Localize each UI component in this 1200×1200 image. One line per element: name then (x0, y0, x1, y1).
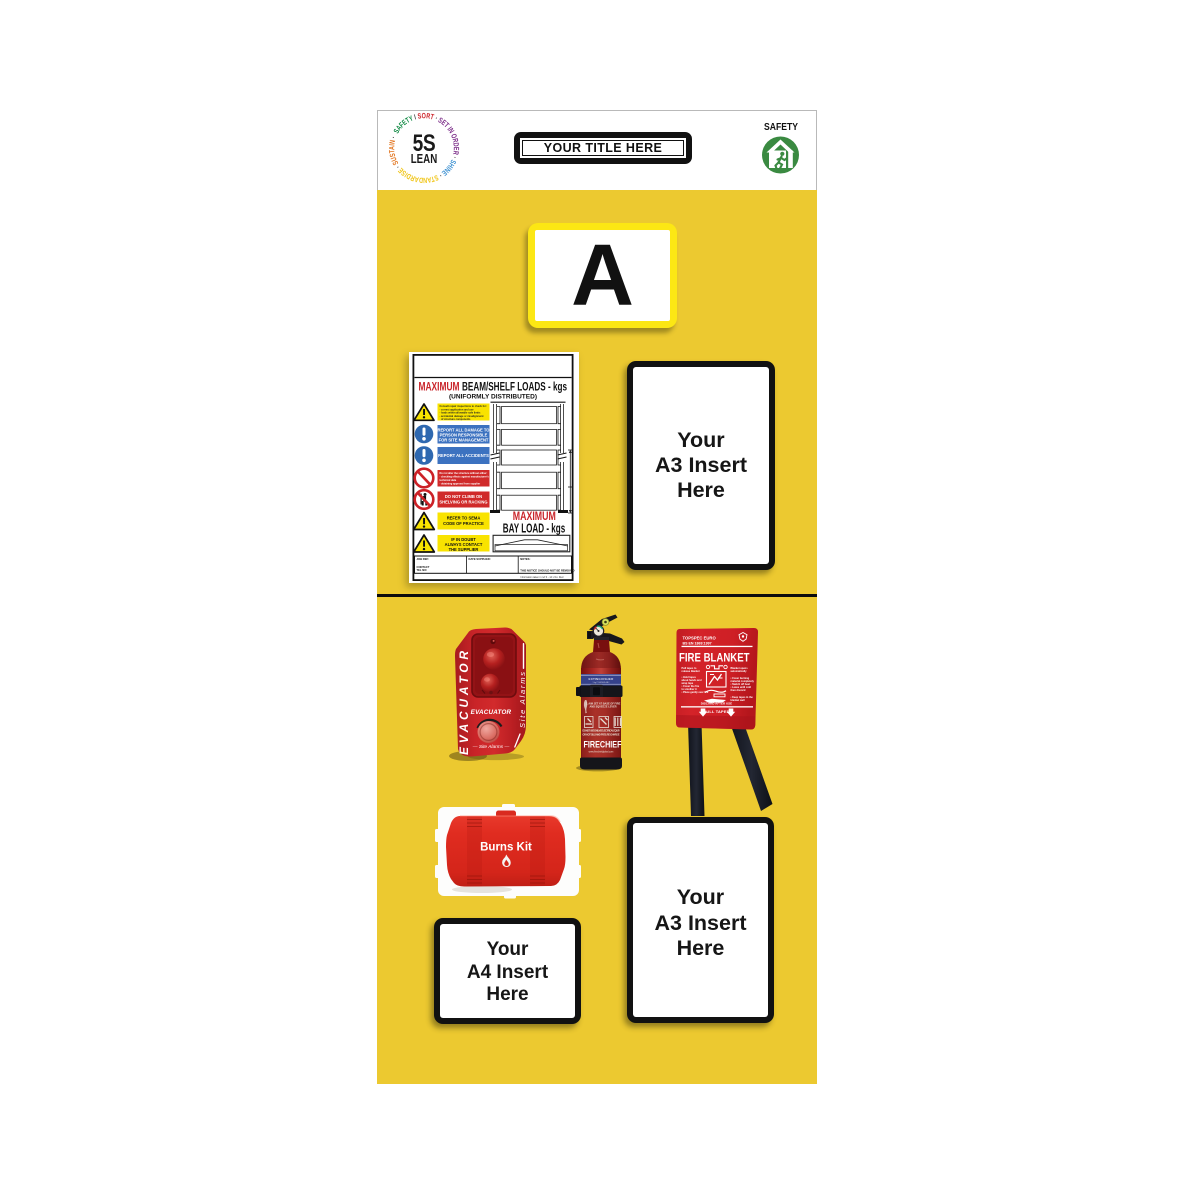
svg-text:REPORT ALL ACCIDENTS: REPORT ALL ACCIDENTS (438, 453, 489, 458)
svg-text:CODE OF PRACTICE: CODE OF PRACTICE (443, 521, 484, 526)
svg-text:AND SQUEEZE LEVER: AND SQUEEZE LEVER (589, 706, 616, 709)
svg-text:BAY LOAD - kgs: BAY LOAD - kgs (502, 522, 564, 536)
svg-text:of structure components: of structure components (441, 418, 471, 421)
svg-text:DISCARD AFTER USE: DISCARD AFTER USE (701, 702, 732, 706)
svg-text:- obtaining approval from supp: - obtaining approval from supplier (439, 482, 480, 485)
svg-text:TEL NO:: TEL NO: (416, 568, 427, 572)
svg-text:FIRECHIEF: FIRECHIEF (584, 740, 622, 751)
svg-text:EVACUATOR: EVACUATOR (471, 709, 512, 716)
svg-text:TOPSPEC EURO: TOPSPEC EURO (683, 636, 717, 641)
svg-text:DO NOT CLIMB ON: DO NOT CLIMB ON (444, 494, 481, 499)
svg-text:1 kg POWDER ABC: 1 kg POWDER ABC (593, 681, 611, 684)
svg-text:automatically: automatically (731, 670, 748, 673)
svg-text:then discard: then discard (731, 689, 746, 692)
svg-text:NOTES:: NOTES: (520, 557, 530, 561)
svg-text:Site Alarms: Site Alarms (518, 672, 527, 728)
svg-text:REFER TO SEMA: REFER TO SEMA (446, 516, 480, 521)
svg-text:PULL TAPES: PULL TAPES (704, 709, 730, 714)
svg-text:BEAM/SHELF LOADS - kgs: BEAM/SHELF LOADS - kgs (462, 382, 567, 394)
svg-text:JOB REF:: JOB REF: (416, 557, 429, 561)
svg-text:release blanket: release blanket (682, 670, 700, 673)
svg-text:EXTINGUISHER: EXTINGUISHER (589, 677, 615, 681)
svg-text:• Place gently over fire: • Place gently over fire (682, 691, 709, 694)
svg-text:LEAN: LEAN (411, 153, 438, 166)
svg-text:Burns Kit: Burns Kit (480, 842, 532, 854)
svg-text:DATE SUPPLIED:: DATE SUPPLIED: (468, 557, 490, 561)
svg-text:FIRE BLANKET: FIRE BLANKET (679, 653, 750, 665)
svg-text:THE SUPPLIER: THE SUPPLIER (448, 547, 478, 552)
svg-text:FOR SITE MANAGEMENT: FOR SITE MANAGEMENT (438, 437, 488, 442)
svg-text:SHELVING OR RACKING: SHELVING OR RACKING (439, 499, 487, 504)
svg-text:BS EN 1869:1997: BS EN 1869:1997 (683, 642, 712, 646)
svg-text:blanket well: blanket well (731, 699, 745, 702)
svg-text:MAXIMUM: MAXIMUM (418, 382, 459, 394)
svg-text:EVACUATOR: EVACUATOR (457, 651, 471, 755)
svg-text:SAFETY: SAFETY (764, 121, 798, 133)
svg-text:www.firechiefglobal.com: www.firechiefglobal.com (589, 750, 614, 753)
svg-text:— Site Alarms —: — Site Alarms — (472, 744, 510, 750)
svg-text:OR HOT OILS AND FATS. RE-CHARG: OR HOT OILS AND FATS. RE-CHARGE (583, 733, 620, 736)
svg-text:(UNIFORMLY DISTRIBUTED): (UNIFORMLY DISTRIBUTED) (449, 394, 537, 401)
svg-text:Information taken in ref S - 1: Information taken in ref S - 14 x No. Re… (520, 576, 563, 579)
svg-text:DO NOT USE ON LIVE ELECTRICAL: DO NOT USE ON LIVE ELECTRICAL EQUIP. (583, 730, 620, 733)
svg-text:THIS NOTICE SHOULD NOT BE REMO: THIS NOTICE SHOULD NOT BE REMOVED (520, 569, 574, 573)
